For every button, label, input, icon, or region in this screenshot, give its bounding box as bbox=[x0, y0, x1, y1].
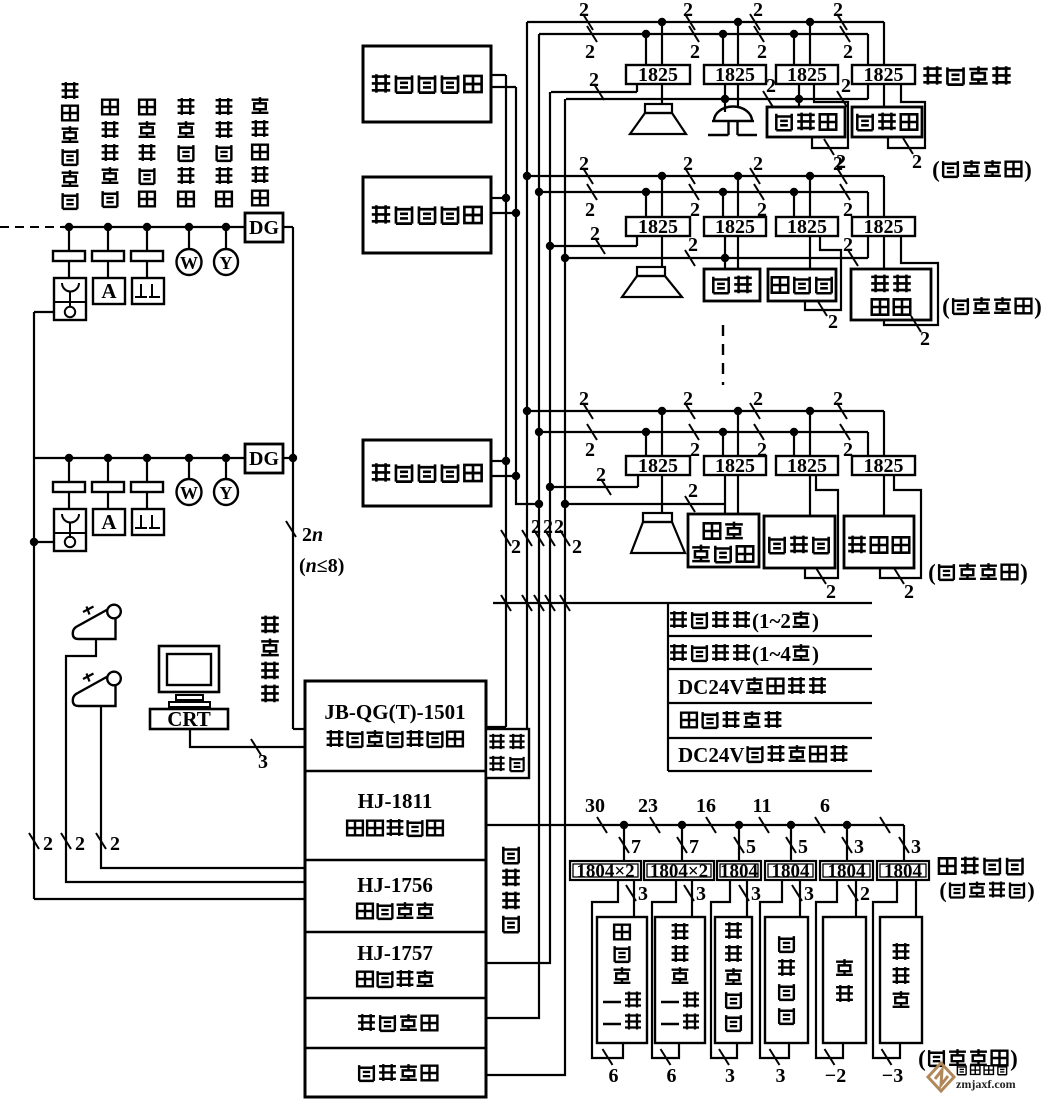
svg-text:2: 2 bbox=[833, 153, 843, 175]
svg-text:3: 3 bbox=[638, 883, 648, 905]
svg-text:2: 2 bbox=[833, 0, 843, 21]
svg-text:2: 2 bbox=[690, 41, 700, 63]
svg-text:1825: 1825 bbox=[787, 64, 827, 86]
svg-text:HJ-1756: HJ-1756 bbox=[357, 873, 433, 897]
svg-text:3: 3 bbox=[776, 1065, 786, 1087]
svg-text:7: 7 bbox=[631, 836, 641, 858]
svg-text:2: 2 bbox=[110, 833, 120, 855]
svg-text:A: A bbox=[101, 279, 117, 303]
svg-text:1804: 1804 bbox=[828, 861, 867, 882]
svg-text:): ) bbox=[1024, 157, 1032, 182]
svg-text:1825: 1825 bbox=[787, 216, 827, 238]
svg-text:2: 2 bbox=[912, 151, 922, 173]
svg-text:1825: 1825 bbox=[638, 216, 678, 238]
svg-text:2: 2 bbox=[920, 328, 930, 350]
svg-text:W: W bbox=[180, 483, 198, 503]
svg-text:1825: 1825 bbox=[638, 455, 678, 477]
svg-text:2: 2 bbox=[554, 516, 564, 538]
svg-text:2: 2 bbox=[753, 388, 763, 410]
svg-text:1825: 1825 bbox=[864, 64, 904, 86]
svg-text:1825: 1825 bbox=[715, 216, 755, 238]
svg-text:16: 16 bbox=[696, 795, 716, 817]
svg-text:2: 2 bbox=[585, 199, 595, 221]
svg-text:2: 2 bbox=[590, 223, 600, 245]
svg-text:2: 2 bbox=[828, 311, 838, 333]
svg-text:−2: −2 bbox=[825, 1065, 846, 1087]
svg-text:2: 2 bbox=[589, 69, 599, 91]
svg-text:2: 2 bbox=[531, 516, 541, 538]
svg-text:2: 2 bbox=[683, 0, 693, 21]
svg-text:2: 2 bbox=[753, 0, 763, 21]
svg-text:(: ( bbox=[939, 878, 946, 903]
svg-text:): ) bbox=[1020, 560, 1028, 585]
svg-text:): ) bbox=[1027, 878, 1034, 903]
svg-text:): ) bbox=[1034, 294, 1042, 319]
svg-text:2: 2 bbox=[543, 516, 553, 538]
svg-text:6: 6 bbox=[609, 1065, 619, 1087]
svg-text:Y: Y bbox=[220, 253, 233, 273]
svg-text:CRT: CRT bbox=[167, 707, 211, 731]
svg-text:1804: 1804 bbox=[772, 861, 811, 882]
svg-text:3: 3 bbox=[854, 836, 864, 858]
svg-text:): ) bbox=[812, 642, 819, 666]
svg-text:2: 2 bbox=[585, 41, 595, 63]
svg-text:2: 2 bbox=[843, 234, 853, 256]
svg-text:DC24V: DC24V bbox=[678, 743, 745, 767]
svg-text:2: 2 bbox=[572, 536, 582, 558]
svg-text:2n: 2n bbox=[302, 524, 323, 546]
svg-text:(: ( bbox=[928, 560, 936, 585]
svg-text:): ) bbox=[1010, 1046, 1018, 1071]
svg-text:JB-QG(T)-1501: JB-QG(T)-1501 bbox=[324, 700, 465, 724]
svg-text:1825: 1825 bbox=[715, 455, 755, 477]
svg-text:2: 2 bbox=[579, 388, 589, 410]
svg-text:2: 2 bbox=[43, 833, 53, 855]
svg-text:zmjaxf.com: zmjaxf.com bbox=[956, 1077, 1016, 1091]
svg-text:(: ( bbox=[932, 157, 940, 182]
svg-text:3: 3 bbox=[804, 883, 814, 905]
svg-text:(1~2: (1~2 bbox=[752, 609, 791, 633]
svg-text:2: 2 bbox=[683, 153, 693, 175]
svg-text:HJ-1757: HJ-1757 bbox=[357, 941, 433, 965]
svg-text:Y: Y bbox=[220, 483, 233, 503]
svg-text:2: 2 bbox=[579, 153, 589, 175]
svg-text:11: 11 bbox=[753, 795, 772, 817]
svg-text:2: 2 bbox=[683, 388, 693, 410]
svg-text:30: 30 bbox=[585, 795, 605, 817]
svg-text:2: 2 bbox=[904, 581, 914, 603]
svg-text:1825: 1825 bbox=[715, 64, 755, 86]
svg-text:(: ( bbox=[942, 294, 950, 319]
svg-text:2: 2 bbox=[753, 153, 763, 175]
svg-text:2: 2 bbox=[688, 234, 698, 256]
svg-text:(1~4: (1~4 bbox=[752, 642, 791, 666]
svg-text:2: 2 bbox=[690, 199, 700, 221]
svg-text:HJ-1811: HJ-1811 bbox=[358, 789, 433, 813]
svg-text:1804: 1804 bbox=[720, 861, 759, 882]
svg-text:(n≤8): (n≤8) bbox=[299, 555, 344, 577]
svg-text:): ) bbox=[812, 609, 819, 633]
svg-text:1825: 1825 bbox=[787, 455, 827, 477]
svg-text:3: 3 bbox=[725, 1065, 735, 1087]
svg-text:23: 23 bbox=[638, 795, 658, 817]
svg-text:(: ( bbox=[918, 1046, 926, 1071]
svg-text:6: 6 bbox=[667, 1065, 677, 1087]
svg-text:3: 3 bbox=[911, 836, 921, 858]
svg-text:DC24V: DC24V bbox=[678, 675, 745, 699]
svg-text:6: 6 bbox=[820, 795, 830, 817]
svg-text:2: 2 bbox=[596, 464, 606, 486]
svg-text:2: 2 bbox=[833, 388, 843, 410]
svg-text:2: 2 bbox=[826, 581, 836, 603]
svg-text:2: 2 bbox=[766, 75, 776, 97]
svg-text:2: 2 bbox=[843, 41, 853, 63]
svg-text:3: 3 bbox=[258, 751, 268, 773]
svg-text:1825: 1825 bbox=[638, 64, 678, 86]
svg-text:2: 2 bbox=[688, 480, 698, 502]
svg-text:2: 2 bbox=[860, 883, 870, 905]
svg-text:7: 7 bbox=[689, 836, 699, 858]
svg-text:A: A bbox=[101, 510, 117, 534]
svg-text:1804×2: 1804×2 bbox=[650, 861, 708, 882]
svg-text:2: 2 bbox=[690, 439, 700, 461]
svg-text:DG: DG bbox=[249, 217, 279, 239]
svg-text:−3: −3 bbox=[882, 1065, 903, 1087]
svg-text:2: 2 bbox=[841, 75, 851, 97]
svg-text:2: 2 bbox=[75, 833, 85, 855]
svg-text:DG: DG bbox=[249, 448, 279, 470]
svg-text:2: 2 bbox=[757, 41, 767, 63]
svg-text:2: 2 bbox=[585, 439, 595, 461]
svg-text:1804: 1804 bbox=[884, 861, 923, 882]
svg-text:1825: 1825 bbox=[864, 216, 904, 238]
svg-text:W: W bbox=[180, 253, 198, 273]
svg-text:1825: 1825 bbox=[864, 455, 904, 477]
svg-text:2: 2 bbox=[511, 536, 521, 558]
svg-text:3: 3 bbox=[696, 883, 706, 905]
svg-text:5: 5 bbox=[798, 836, 808, 858]
svg-text:5: 5 bbox=[746, 836, 756, 858]
svg-text:1804×2: 1804×2 bbox=[576, 861, 634, 882]
svg-text:2: 2 bbox=[579, 0, 589, 21]
